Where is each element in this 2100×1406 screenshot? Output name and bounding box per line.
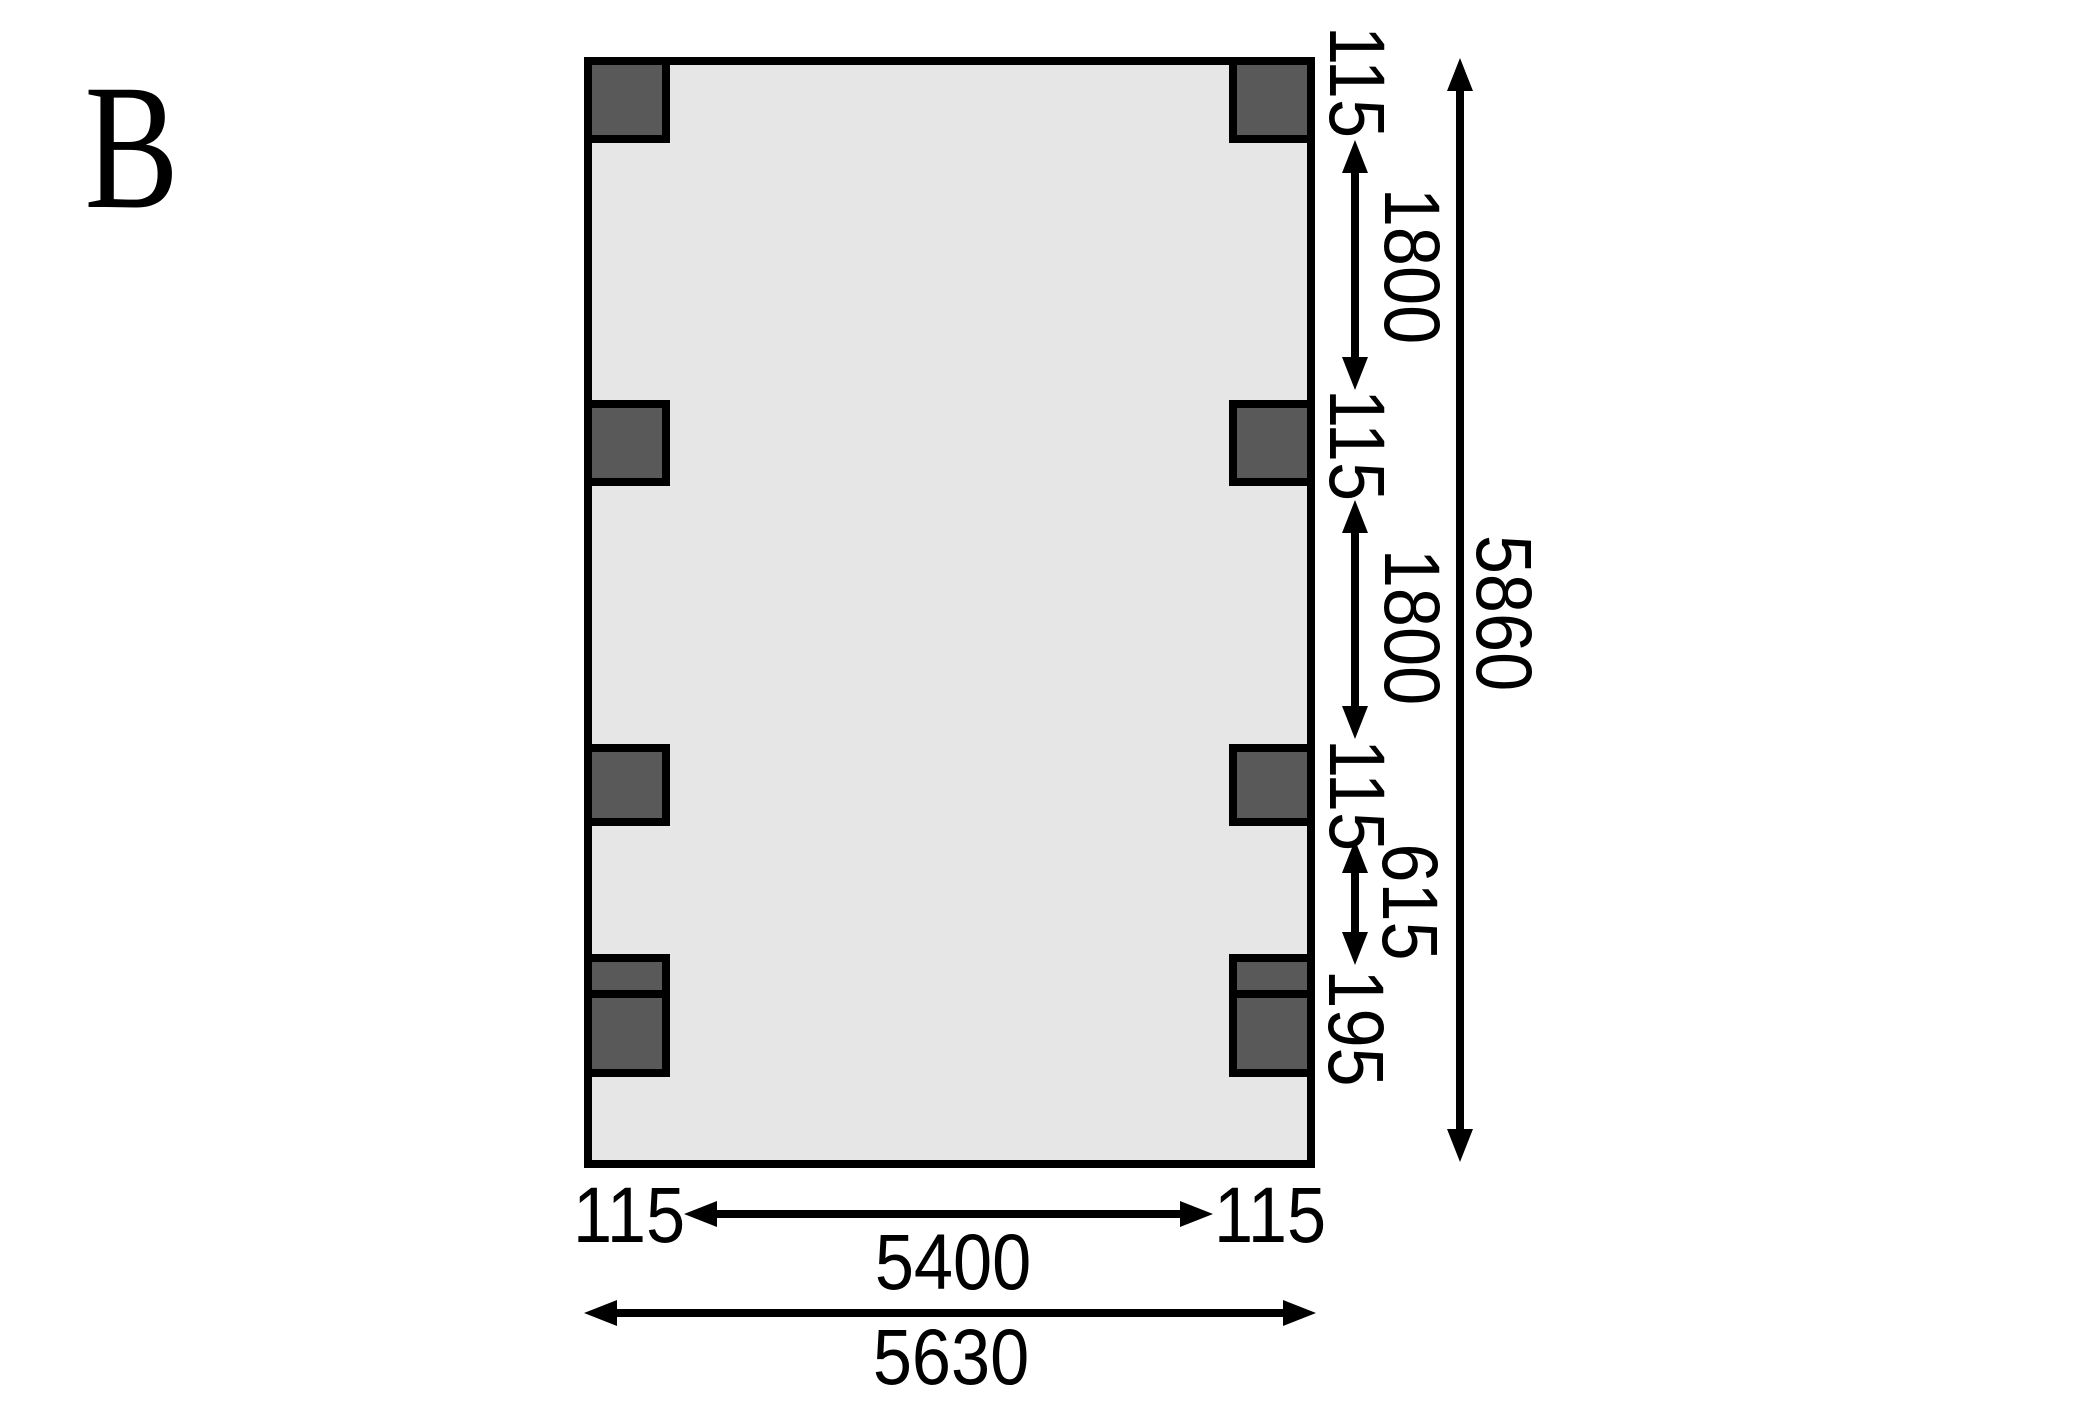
svg-text:5630: 5630 — [873, 1312, 1029, 1401]
svg-text:115: 115 — [1313, 26, 1402, 138]
svg-text:115: 115 — [1313, 739, 1402, 851]
svg-text:1800: 1800 — [1368, 549, 1457, 705]
svg-text:1800: 1800 — [1368, 188, 1457, 344]
svg-text:115: 115 — [573, 1170, 685, 1259]
svg-text:115: 115 — [1313, 389, 1402, 501]
svg-text:195: 195 — [1312, 969, 1401, 1086]
svg-text:5860: 5860 — [1460, 535, 1549, 691]
svg-text:B: B — [85, 47, 179, 246]
svg-text:115: 115 — [1214, 1170, 1326, 1259]
svg-text:5400: 5400 — [875, 1217, 1031, 1306]
svg-text:615: 615 — [1366, 843, 1455, 960]
